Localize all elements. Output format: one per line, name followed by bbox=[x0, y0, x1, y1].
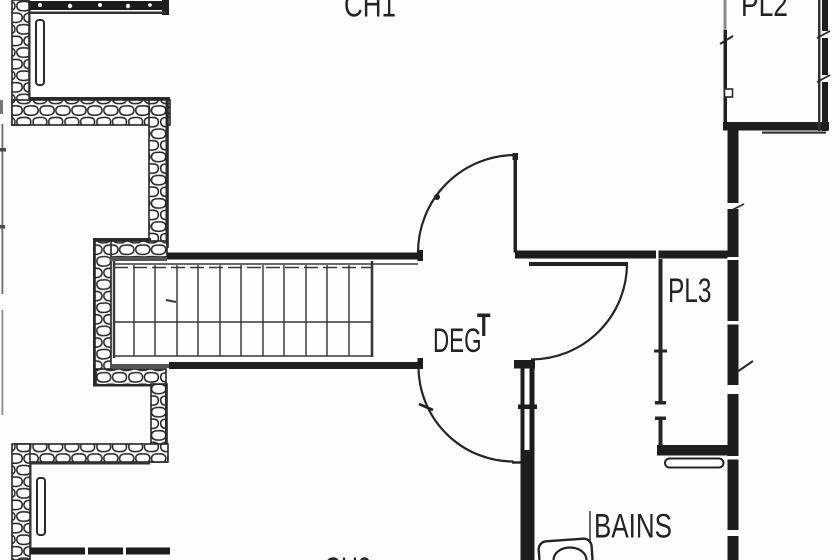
svg-text:DEG: DEG bbox=[433, 322, 482, 360]
svg-text:BAINS: BAINS bbox=[594, 507, 672, 545]
svg-text:PL3: PL3 bbox=[668, 272, 712, 310]
svg-text:CH2: CH2 bbox=[324, 551, 371, 560]
svg-text:PL2: PL2 bbox=[741, 0, 788, 24]
svg-text:CH1: CH1 bbox=[344, 0, 396, 24]
svg-text:T: T bbox=[477, 307, 491, 343]
